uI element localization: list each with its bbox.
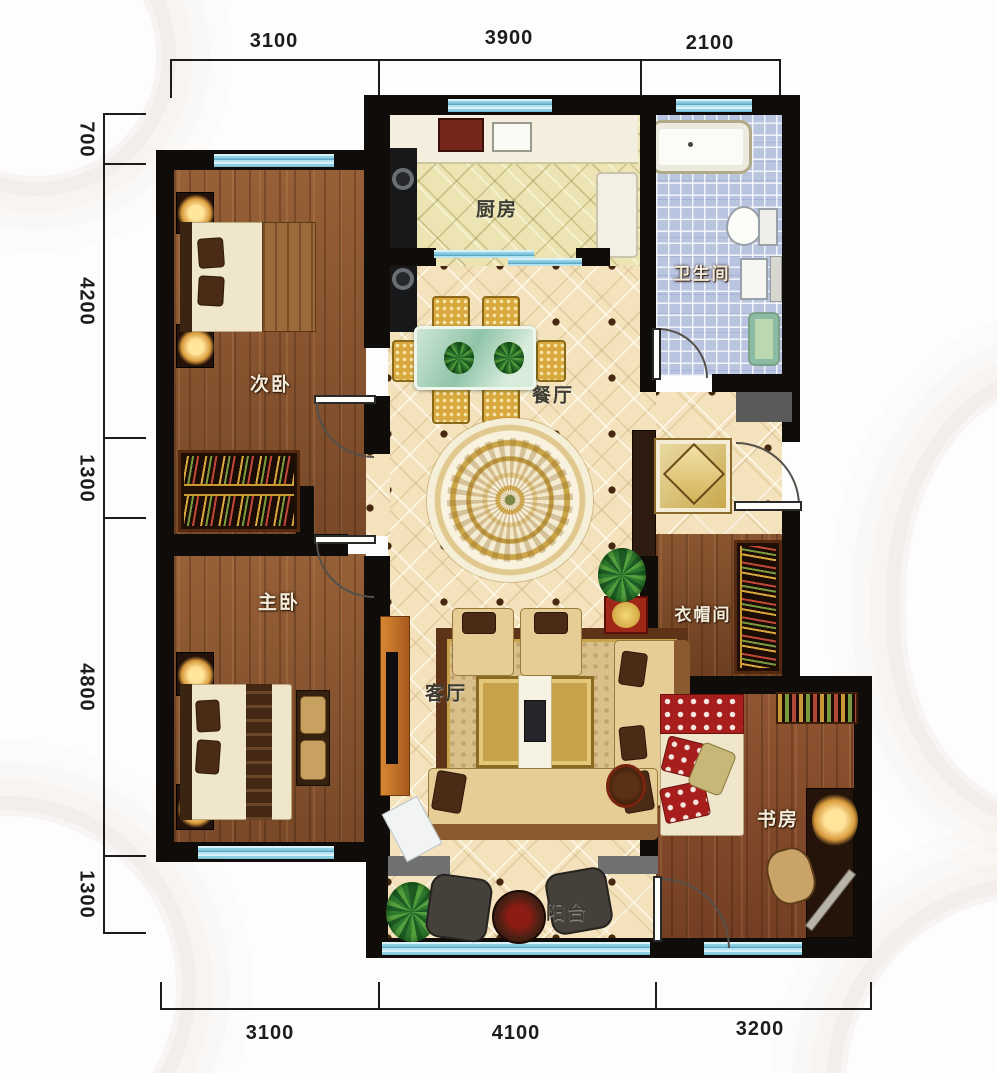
sofa-pillow bbox=[462, 612, 496, 634]
refrigerator bbox=[596, 172, 638, 258]
entry-door-arc bbox=[736, 442, 800, 506]
dim-top-2: 3900 bbox=[474, 27, 544, 50]
bathtub-drain bbox=[688, 142, 693, 147]
wardrobe-hangers bbox=[184, 456, 294, 486]
room-label-cloakroom: 衣帽间 bbox=[675, 601, 732, 626]
coffee-table-tray bbox=[524, 700, 546, 742]
sofa-pillow bbox=[534, 612, 568, 634]
exterior-wall-right-mid bbox=[782, 508, 800, 694]
flower-pot bbox=[606, 764, 646, 808]
dining-chair bbox=[482, 296, 520, 330]
dimension-tick bbox=[640, 59, 642, 98]
dim-top-3: 2100 bbox=[675, 32, 745, 55]
tv bbox=[386, 652, 398, 764]
dimension-tick bbox=[103, 113, 146, 115]
toilet-tank bbox=[758, 208, 778, 246]
balcony-window bbox=[382, 942, 650, 955]
dimension-tick bbox=[160, 982, 162, 1010]
watermark-swirl bbox=[0, 810, 182, 1073]
dim-left-2: 4200 bbox=[75, 272, 98, 332]
kitchen-pass-window bbox=[508, 258, 582, 266]
secondary-bedroom-window bbox=[214, 154, 334, 167]
potted-plant bbox=[598, 548, 646, 602]
kitchen-window bbox=[448, 99, 552, 112]
stove-burner bbox=[392, 168, 414, 190]
dimension-line-left bbox=[103, 113, 105, 934]
daybed-bolster bbox=[660, 694, 744, 734]
dimension-line-top bbox=[170, 59, 780, 61]
dimension-tick bbox=[103, 932, 146, 934]
table-plant bbox=[494, 342, 524, 374]
dim-bottom-3: 3200 bbox=[725, 1018, 795, 1041]
room-label-bathroom: 卫生间 bbox=[674, 260, 731, 285]
foyer-cabinet bbox=[632, 430, 656, 560]
dimension-tick bbox=[378, 59, 380, 98]
dim-top-1: 3100 bbox=[239, 30, 309, 53]
dimension-line-bottom bbox=[160, 1008, 872, 1010]
floor-plan-image: 3100 3900 2100 700 4200 1300 4800 1300 3… bbox=[0, 0, 997, 1073]
dimension-tick bbox=[779, 59, 781, 98]
bathroom-bottom-wall bbox=[712, 374, 800, 392]
dimension-tick bbox=[170, 59, 172, 98]
dining-chair bbox=[432, 296, 470, 330]
bathroom-window bbox=[676, 99, 752, 112]
dining-chair bbox=[536, 340, 566, 382]
dining-chair bbox=[432, 388, 470, 424]
stove-burner bbox=[392, 268, 414, 290]
dimension-tick bbox=[378, 982, 380, 1010]
room-label-dining: 餐厅 bbox=[532, 381, 574, 408]
balcony-chair bbox=[424, 872, 494, 944]
room-label-living: 客厅 bbox=[425, 679, 467, 706]
bookshelf bbox=[776, 692, 858, 724]
wardrobe-hangers bbox=[184, 494, 294, 526]
bed-pillow bbox=[197, 275, 225, 306]
wall-segment bbox=[388, 248, 436, 266]
floor-medallion-spokes bbox=[447, 438, 573, 562]
room-label-study: 书房 bbox=[757, 805, 799, 832]
exterior-wall-left bbox=[156, 150, 174, 862]
dim-left-3: 1300 bbox=[75, 449, 98, 509]
bench-cushion bbox=[300, 740, 326, 780]
watermark-swirl bbox=[900, 380, 997, 812]
balcony-pier bbox=[598, 856, 658, 874]
room-label-master-bedroom: 主卧 bbox=[258, 588, 300, 615]
lamp-glow bbox=[178, 328, 214, 366]
sofa-pillow bbox=[618, 650, 648, 687]
sofa-pillow bbox=[618, 725, 647, 762]
study-door bbox=[653, 876, 662, 942]
dim-bottom-1: 3100 bbox=[235, 1022, 305, 1045]
table-plant bbox=[444, 342, 474, 374]
room-label-kitchen: 厨房 bbox=[476, 195, 518, 222]
room-label-balcony: 阳台 bbox=[546, 898, 588, 925]
dim-left-4: 4800 bbox=[75, 658, 98, 718]
kitchen-appliance bbox=[438, 118, 484, 152]
dimension-tick bbox=[655, 982, 657, 1010]
bed-headboard bbox=[180, 684, 192, 820]
bed-pillow bbox=[195, 739, 221, 775]
entry-mat bbox=[736, 392, 792, 422]
sofa-bottom-back bbox=[428, 824, 658, 840]
dimension-tick bbox=[103, 855, 146, 857]
desk-lamp-glow bbox=[812, 792, 858, 848]
side-table-bowl bbox=[612, 602, 640, 628]
master-bedroom-window bbox=[198, 846, 334, 859]
entry-door bbox=[734, 501, 802, 511]
bathroom-vanity bbox=[740, 258, 768, 300]
bench-cushion bbox=[300, 696, 326, 734]
dim-bottom-2: 4100 bbox=[481, 1022, 551, 1045]
bed-blanket bbox=[262, 222, 316, 332]
bathtub bbox=[650, 120, 752, 174]
bed-pillow bbox=[195, 699, 221, 732]
bed-pillow bbox=[197, 237, 225, 269]
dimension-tick bbox=[870, 982, 872, 1010]
bathroom-door bbox=[652, 328, 661, 380]
dimension-tick bbox=[103, 163, 146, 165]
balcony-table bbox=[492, 890, 546, 944]
dimension-tick bbox=[103, 517, 146, 519]
room-label-secondary-bedroom: 次卧 bbox=[250, 370, 292, 397]
toilet bbox=[726, 206, 762, 246]
bathroom-shelf bbox=[770, 256, 782, 302]
interior-wall-bedroom-hall-upper bbox=[364, 95, 390, 348]
kitchen-pass-window bbox=[434, 250, 534, 258]
washing-machine bbox=[748, 312, 780, 366]
cloakroom-hangers bbox=[740, 546, 776, 668]
dim-left-1: 700 bbox=[75, 110, 98, 170]
dim-left-5: 1300 bbox=[75, 865, 98, 925]
kitchen-sink bbox=[492, 122, 532, 152]
bed-runner bbox=[246, 684, 272, 820]
bed-headboard bbox=[180, 222, 192, 332]
dimension-tick bbox=[103, 437, 146, 439]
